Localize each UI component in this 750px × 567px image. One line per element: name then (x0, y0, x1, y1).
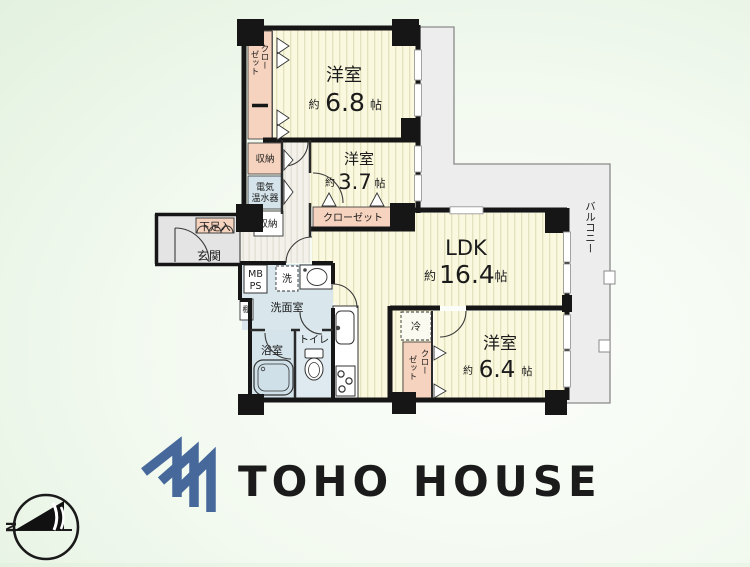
water-heater-label-line1: 電気 (256, 181, 274, 193)
room-ldk-prefix: 約 (424, 268, 436, 283)
pillar (237, 19, 264, 46)
water-heater-label-line2: 温水器 (251, 192, 278, 204)
pillar (545, 208, 567, 233)
window-ldk (564, 232, 571, 262)
window-west37 (415, 146, 422, 172)
window-west37 (415, 175, 422, 201)
balcony-label: バルコニー (584, 201, 596, 254)
closet64-label-line1: クロー (419, 349, 429, 375)
closet68-label-line2: ゼット (249, 50, 259, 76)
pillar (238, 394, 264, 415)
entrance-label: 玄関 (197, 248, 221, 263)
room-west68-prefix: 約 (309, 97, 320, 111)
balcony-partition-notch (604, 271, 615, 284)
room-west37-unit: 帖 (375, 177, 386, 190)
stove-burner-icon (339, 386, 345, 392)
closet37-label: クローゼット (323, 212, 383, 224)
window-west64 (564, 315, 571, 349)
storage-top-label: 収納 (255, 153, 274, 165)
mb-label: MB (248, 269, 263, 280)
toilet-label: トイレ (299, 335, 329, 346)
window-ldk (564, 264, 571, 293)
shelf-label: 棚 (242, 304, 251, 314)
storage-bottom-label: 収納 (258, 218, 277, 230)
ps-label: PS (250, 281, 262, 292)
room-west68-area: 6.8 (325, 88, 365, 117)
vanity-basin (307, 269, 327, 286)
logo-text: TOHO HOUSE (238, 457, 602, 506)
compass-north-label: N (2, 522, 17, 533)
window-west68 (415, 50, 422, 80)
floor-plan-page: 洋室 約 6.8 帖 洋室 約 3.7 帖 LDK 約 16.4 帖 洋室 約 … (0, 0, 750, 563)
bath-label: 浴室 (261, 343, 283, 357)
closet64-label-line2: ゼット (407, 355, 417, 381)
logo: TOHO HOUSE (144, 446, 602, 512)
washroom-label: 洗面室 (271, 300, 304, 314)
wall-chunk-between-windows (562, 295, 572, 312)
room-west64-name: 洋室 (483, 334, 517, 354)
room-ldk-unit: 帖 (494, 270, 507, 285)
pillar (401, 118, 416, 142)
pillar (545, 390, 567, 415)
toilet-tank (305, 349, 323, 358)
stove-burner-icon (346, 378, 352, 384)
room-west64-floor (434, 311, 565, 398)
room-ldk-name: LDK (445, 236, 488, 260)
room-west37-name: 洋室 (344, 150, 374, 168)
logo-chevrons-icon (144, 446, 211, 512)
washer-label: 洗 (282, 273, 292, 285)
balcony-door-ldk (450, 207, 483, 214)
room-west64-area: 6.4 (479, 357, 516, 383)
vanity-faucet-icon (303, 268, 307, 272)
room-ldk-area: 16.4 (439, 260, 495, 289)
room-west64-prefix: 約 (463, 364, 473, 377)
room-west64-unit: 帖 (522, 365, 533, 378)
room-west68-unit: 帖 (370, 97, 382, 112)
stove-burner-icon (338, 371, 344, 377)
shoebox-label: 下足入 (199, 221, 231, 233)
toilet-bowl (305, 358, 323, 380)
closet68-label-line1: クロー (259, 44, 269, 70)
pillar (392, 19, 419, 46)
room-west68-name: 洋室 (326, 65, 362, 86)
room-west37-area: 3.7 (338, 170, 371, 194)
compass: N (2, 495, 78, 559)
kitchen-faucet-icon (336, 326, 340, 330)
fridge-label: 冷 (411, 320, 421, 333)
floor-plan-svg: 洋室 約 6.8 帖 洋室 約 3.7 帖 LDK 約 16.4 帖 洋室 約 … (0, 0, 750, 563)
bathtub (254, 360, 293, 395)
room-west37-prefix: 約 (325, 176, 335, 189)
pillar (392, 392, 416, 414)
pillar (390, 203, 415, 230)
window-west68 (415, 84, 422, 116)
window-west64 (564, 351, 571, 387)
balcony-partition-notch (599, 340, 610, 352)
